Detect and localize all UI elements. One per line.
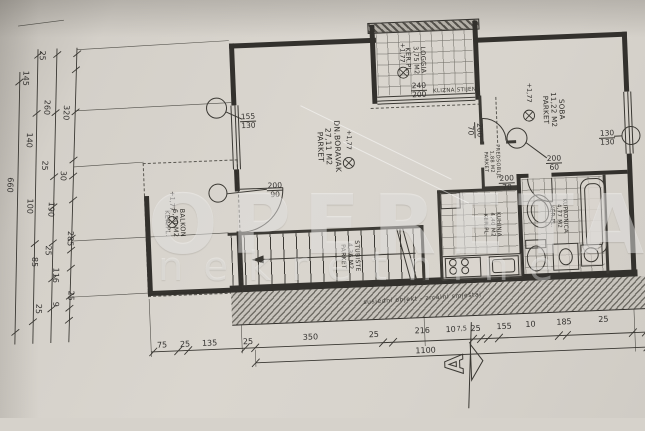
- room-label-stubiste: STUBIŠTE 4,36 M2 PARKET: [338, 240, 360, 272]
- dim-total-label: 1100: [415, 346, 436, 356]
- dim-label: 9: [51, 302, 60, 307]
- dim-label: 135: [202, 338, 218, 348]
- dim-label: 260: [42, 100, 51, 116]
- dim-label: 190: [46, 202, 55, 218]
- dim-label: 25: [243, 337, 254, 346]
- dim-label: 10: [445, 325, 456, 334]
- room-label-balkon: BALKON 6,50 M2 KER.PL.: [163, 209, 187, 238]
- balcony-door-size: 200 90: [267, 182, 284, 200]
- left-dimension-chains: [0, 48, 93, 345]
- dim-label: 660: [5, 177, 14, 193]
- dim-label: 25: [470, 324, 481, 333]
- room-label-living: DN.BORAVAK 27,11 M2 PARKET: [314, 120, 342, 173]
- dim-label: 25: [598, 315, 609, 324]
- left-window-size: 155 130: [240, 113, 257, 131]
- dim-label: 145: [21, 71, 30, 87]
- dim-label: 7,5: [456, 324, 467, 332]
- floor-plan-drawing: A DN.BORAVAK 27,11 M2 PARKET SOBA 11,22 …: [0, 0, 645, 431]
- dim-label: 100: [25, 198, 34, 214]
- room-label-kupaonica: KUPAONICA 4,77 M2 KER.PL.: [548, 198, 568, 233]
- room-door-size: 200 60: [546, 154, 563, 172]
- dim-label: 25: [40, 160, 49, 170]
- dim-label: 285: [66, 231, 75, 247]
- dim-label: 155: [496, 321, 512, 331]
- room-label-loggia: LOGGIA 3,75 M2 KER.PL.: [403, 46, 427, 75]
- dim-label: 30: [59, 171, 68, 181]
- hall-door-size: 200 70: [466, 122, 484, 139]
- level-label-soba: +1,77: [525, 83, 534, 103]
- dim-label: 25: [66, 290, 75, 300]
- level-label-loggia: +1,77: [398, 43, 407, 63]
- dim-label: 25: [180, 339, 191, 348]
- right-window-size: 130 130: [599, 129, 616, 147]
- room-label-soba: SOBA 11,22 M2 PARKET: [541, 92, 567, 128]
- stair-direction-arrow: [251, 227, 417, 286]
- section-letter: A: [440, 353, 470, 374]
- dim-label: 350: [303, 332, 319, 342]
- dim-label: 85: [30, 257, 39, 267]
- dim-label: 25: [369, 330, 380, 339]
- dim-label: 216: [414, 326, 430, 336]
- dim-label: 10: [525, 320, 536, 329]
- dim-label: 75: [157, 340, 168, 349]
- dim-label: 25: [44, 245, 53, 255]
- stove-burners: [449, 259, 468, 275]
- bottom-dimension-chain: [149, 328, 645, 371]
- level-label-living: +1,77: [345, 130, 354, 150]
- dim-label: 25: [38, 50, 47, 60]
- level-label-balkon: +1,77: [168, 191, 177, 211]
- dim-label: 25: [34, 304, 43, 314]
- loggia-wall-size: 240 200: [411, 82, 428, 100]
- bath-door-size: 200 70: [498, 174, 515, 192]
- scanned-floor-plan: { "watermark": { "primary": "OPERETA", "…: [0, 0, 645, 418]
- dim-label: 140: [25, 132, 34, 148]
- dim-label: 116: [51, 267, 60, 283]
- dim-label: 185: [556, 317, 572, 327]
- room-label-kuhinja: KUHINJA 4,40 M2 KER.PL.: [482, 212, 502, 237]
- section-marker: A: [438, 322, 484, 410]
- dim-label: 320: [62, 105, 71, 121]
